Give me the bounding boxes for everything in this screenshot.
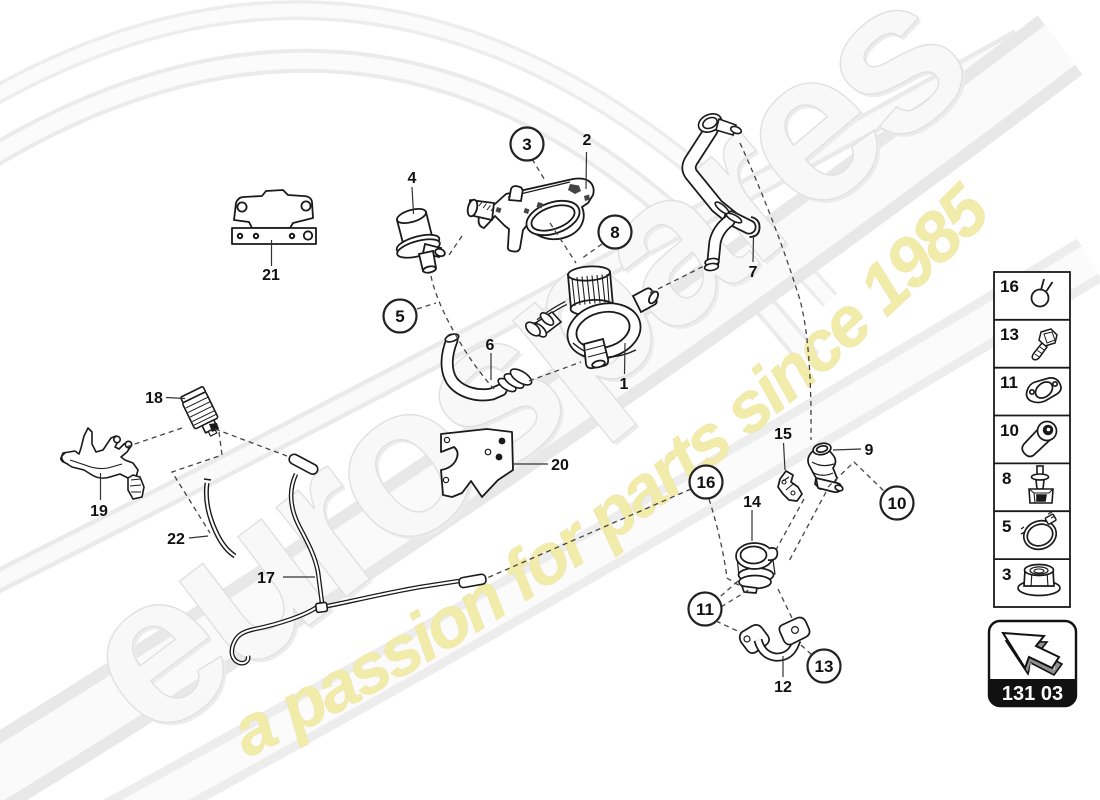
svg-text:5: 5 bbox=[1002, 517, 1011, 536]
svg-text:3: 3 bbox=[522, 135, 531, 154]
svg-text:4: 4 bbox=[408, 170, 417, 187]
svg-text:8: 8 bbox=[1002, 469, 1011, 488]
svg-text:20: 20 bbox=[551, 457, 569, 474]
svg-text:10: 10 bbox=[1000, 421, 1019, 440]
svg-text:16: 16 bbox=[697, 473, 716, 492]
svg-text:12: 12 bbox=[774, 679, 792, 696]
svg-text:11: 11 bbox=[696, 600, 714, 619]
svg-text:3: 3 bbox=[1002, 565, 1011, 584]
svg-text:13: 13 bbox=[1000, 325, 1019, 344]
svg-text:14: 14 bbox=[743, 494, 761, 511]
svg-text:6: 6 bbox=[486, 337, 495, 354]
svg-text:10: 10 bbox=[888, 494, 907, 513]
svg-text:7: 7 bbox=[749, 264, 758, 281]
svg-text:16: 16 bbox=[1000, 277, 1019, 296]
svg-text:22: 22 bbox=[167, 531, 185, 548]
svg-text:1: 1 bbox=[620, 376, 629, 393]
svg-text:131 03: 131 03 bbox=[1002, 683, 1063, 705]
svg-text:11: 11 bbox=[1000, 373, 1018, 392]
svg-text:8: 8 bbox=[610, 223, 619, 242]
svg-text:21: 21 bbox=[262, 267, 280, 284]
svg-text:5: 5 bbox=[395, 307, 404, 326]
svg-text:13: 13 bbox=[815, 657, 834, 676]
svg-text:19: 19 bbox=[90, 503, 108, 520]
svg-text:15: 15 bbox=[774, 426, 792, 443]
svg-text:9: 9 bbox=[865, 442, 874, 459]
svg-text:18: 18 bbox=[145, 390, 163, 407]
svg-text:17: 17 bbox=[257, 570, 275, 587]
svg-text:2: 2 bbox=[583, 132, 592, 149]
